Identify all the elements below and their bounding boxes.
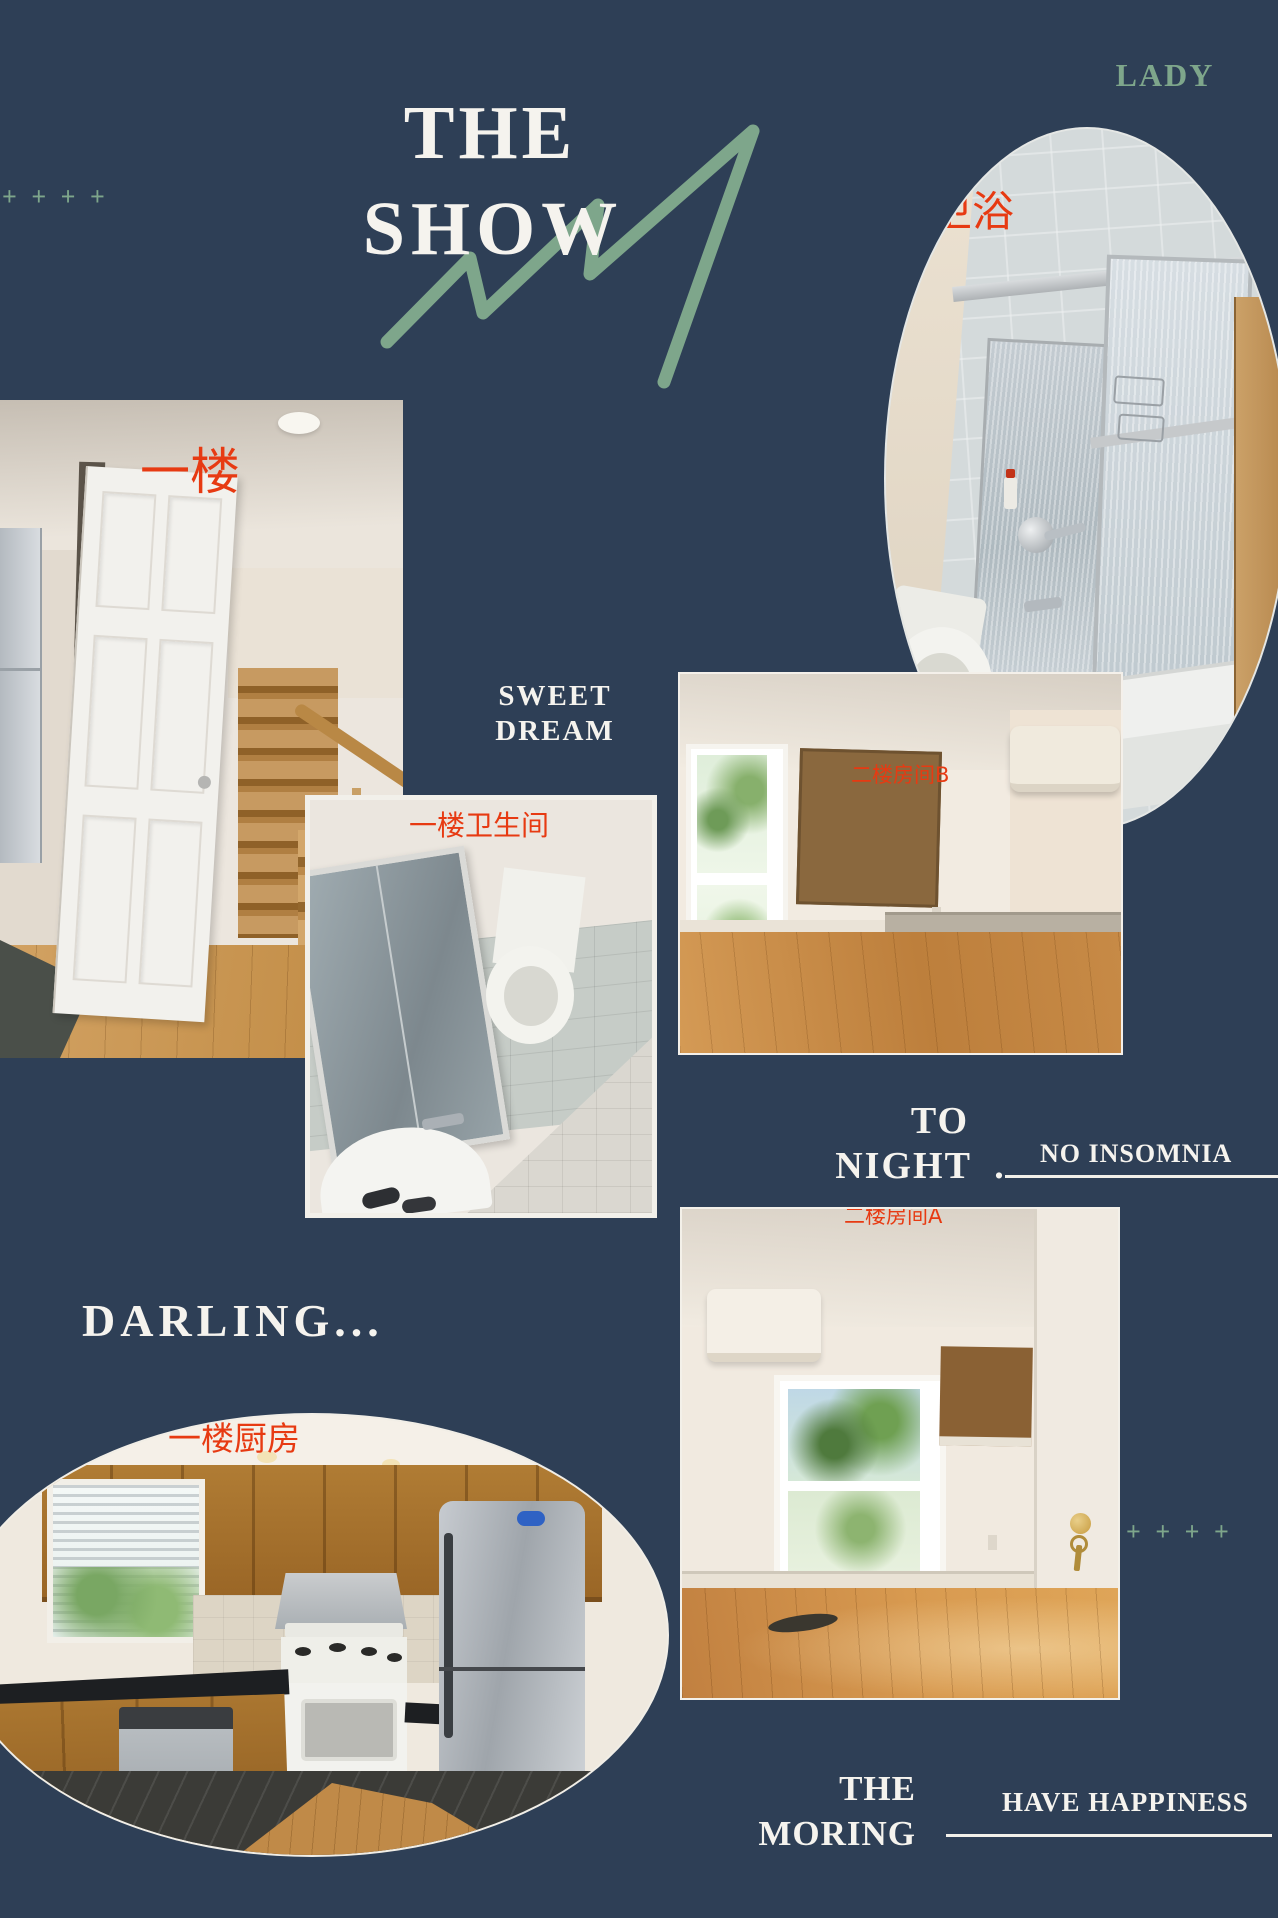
plus-decoration-bottom-right: + + + +: [1126, 1517, 1233, 1547]
fridge-logo: [517, 1511, 545, 1526]
room-a-door: [1034, 1209, 1120, 1649]
photo-first-floor-bathroom: 一楼卫生间: [305, 795, 657, 1218]
door-panel: [84, 635, 147, 790]
door-panel: [150, 639, 213, 794]
door-panel: [161, 495, 222, 614]
poster-title-line1: THE: [330, 90, 650, 177]
bathroom-door-edge: [1234, 297, 1278, 722]
wall-opening: [939, 1346, 1033, 1447]
fridge-handle: [444, 1533, 453, 1738]
photo-room-b: 二楼房间B: [678, 672, 1123, 1055]
door-panel: [95, 491, 156, 610]
burner: [387, 1653, 402, 1662]
poster-title-line2: SHOW: [333, 186, 653, 273]
cleaner-bottle: [1004, 477, 1017, 509]
kitchen-window: [47, 1479, 205, 1643]
ceiling-light: [278, 412, 320, 434]
photo-room-a: 二楼房间A: [680, 1207, 1120, 1700]
window-greenery: [53, 1567, 199, 1637]
cleaner-bottle-cap: [1006, 469, 1015, 478]
caption-sweet-line1: SWEET: [470, 680, 640, 713]
burner: [329, 1643, 346, 1652]
door-panel: [138, 818, 202, 987]
label-master-bath: 卫浴: [930, 189, 1014, 234]
poster-canvas: + + + + + + + + THE SHOW LADY 卫浴: [0, 0, 1278, 1918]
burner: [295, 1647, 311, 1656]
caption-darling: DARLING...: [82, 1294, 384, 1347]
caption-tonight-line1: TO: [860, 1099, 1020, 1143]
label-kitchen: 一楼厨房: [168, 1421, 300, 1457]
lady-corner-text: LADY: [1105, 57, 1225, 94]
door-knob: [1070, 1513, 1091, 1534]
plus-decoration-top-left: + + + +: [2, 182, 109, 212]
underline-have-happiness: [946, 1834, 1272, 1837]
wall-outlet: [988, 1535, 997, 1550]
stove-control-panel: [285, 1623, 403, 1638]
ac-unit: [1010, 726, 1120, 792]
photo-kitchen: 一楼厨房: [0, 1413, 669, 1857]
open-white-door: [53, 466, 238, 1022]
caption-no-insomnia: NO INSOMNIA: [1040, 1139, 1232, 1169]
mirror-cabinet-seam: [376, 865, 423, 1147]
label-first-floor-bathroom: 一楼卫生间: [409, 811, 549, 841]
ac-unit: [707, 1289, 821, 1362]
toilet-bowl: [504, 966, 558, 1026]
caption-sweet-line2: DREAM: [470, 715, 640, 748]
burner: [361, 1647, 377, 1656]
fridge-door-split: [439, 1667, 585, 1671]
refrigerator-split-line: [0, 668, 40, 671]
caption-morning-line1: THE: [700, 1769, 916, 1809]
window-pane-upper: [697, 755, 767, 873]
window-pane-upper: [788, 1389, 920, 1481]
mirror-cabinet: [305, 846, 510, 1168]
door-panel: [73, 814, 137, 983]
underline-no-insomnia: [1005, 1175, 1278, 1178]
door-knob: [198, 775, 212, 789]
shower-caddy-shelf: [1113, 375, 1165, 406]
caption-have-happiness: HAVE HAPPINESS: [1002, 1787, 1249, 1818]
label-room-b: 二楼房间B: [851, 764, 949, 787]
refrigerator-edge: [0, 528, 42, 863]
range-hood: [275, 1573, 407, 1629]
label-room-a: 二楼房间A: [844, 1207, 942, 1228]
oven-window: [301, 1699, 397, 1761]
caption-tonight-line2: NIGHT .: [828, 1144, 1013, 1188]
caption-morning-line2: MORING: [700, 1814, 916, 1854]
label-first-floor: 一楼: [140, 445, 240, 499]
shower-caddy-shelf: [1117, 413, 1165, 442]
room-b-wood-floor: [680, 932, 1121, 1053]
room-a-wood-floor: [682, 1588, 1118, 1698]
